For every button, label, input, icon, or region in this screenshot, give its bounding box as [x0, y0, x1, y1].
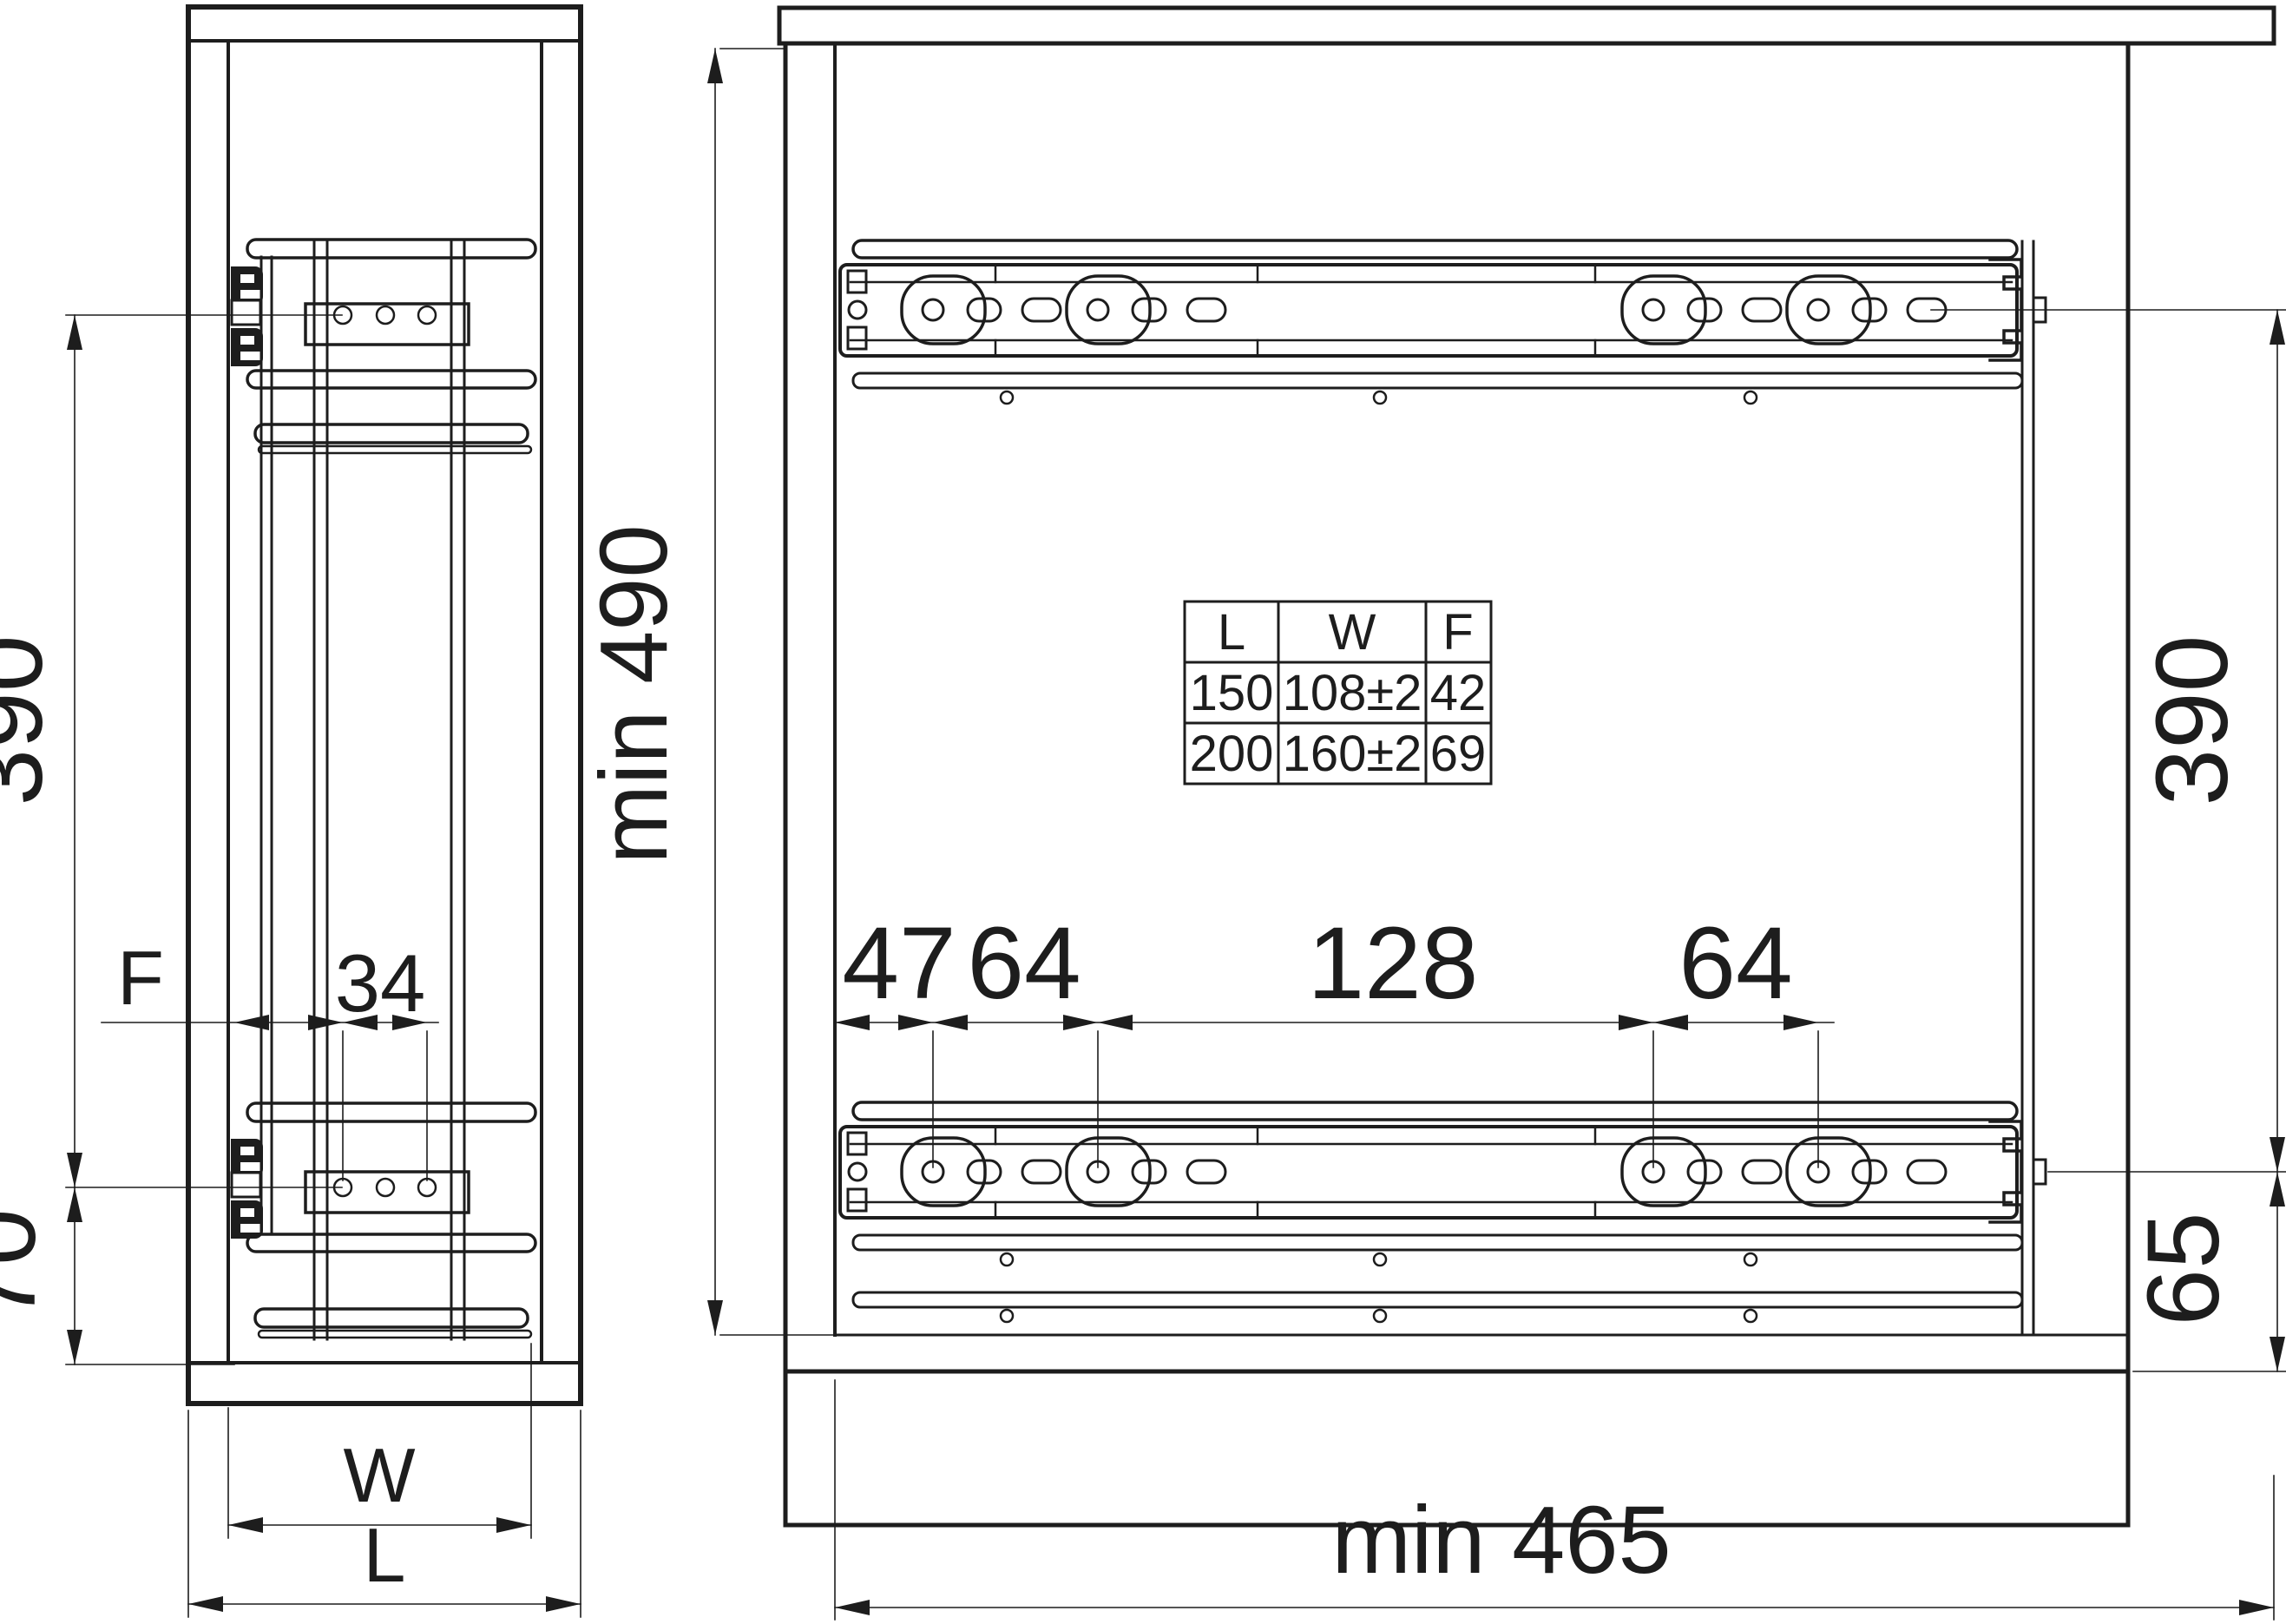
front-basket-posts [314, 240, 464, 1339]
front-dim-W-label: W [343, 1432, 415, 1518]
front-dim-F-label: F [117, 935, 164, 1021]
front-view: 390 70 F 34 W [0, 7, 581, 1617]
table-cell: 200 [1190, 726, 1274, 782]
side-dim-390-65: 390 65 [1931, 310, 2286, 1371]
table-cell: 150 [1190, 665, 1274, 721]
side-dim-64-left-label: 64 [967, 906, 1081, 1021]
front-slide-bar [261, 257, 272, 1233]
front-top-wall-clip [231, 266, 263, 366]
drawer-slide-bottom [840, 1102, 2046, 1266]
side-bottom-shelf-extra [853, 1292, 2022, 1322]
side-dim-min490-label: min 490 [581, 524, 687, 864]
side-dim-min465-label: min 465 [1331, 1487, 1671, 1594]
side-dim-min465: min 465 [835, 1380, 2274, 1620]
side-dim-128-label: 128 [1308, 906, 1479, 1021]
rail-slot-group [902, 276, 1061, 344]
pullout-basket-installation-drawing: 390 70 F 34 W [0, 0, 2286, 1624]
front-basket-bottom [247, 1103, 535, 1338]
table-cell: 108±2 [1283, 665, 1422, 721]
rail-slot-group [1067, 276, 1225, 344]
side-dim-min490: min 490 [581, 49, 835, 1335]
front-dim-L-label: L [364, 1512, 406, 1598]
table-cell: 42 [1430, 665, 1487, 721]
rail-slot-group [1787, 276, 1946, 344]
table-cell: 160±2 [1283, 726, 1422, 782]
front-dim-W: W [228, 1344, 531, 1538]
front-dim-390-label: 390 [0, 635, 64, 806]
table-header-F: F [1442, 604, 1473, 661]
table-header-L: L [1218, 604, 1245, 661]
drawer-slide-top [840, 240, 2046, 404]
front-dim-34-label: 34 [335, 937, 426, 1029]
rail-slot-group [1622, 276, 1781, 344]
side-cabinet-outline [779, 8, 2274, 1525]
front-dim-F-34: F 34 [102, 935, 438, 1180]
front-dim-70: 70 [0, 1187, 234, 1364]
side-dim-64-right-label: 64 [1678, 906, 1792, 1021]
technical-drawing-page: 390 70 F 34 W [0, 0, 2286, 1624]
side-view: L W F 150 108±2 42 200 160±2 69 min 490 [581, 8, 2286, 1620]
front-basket-top [247, 240, 535, 453]
side-dim-390-label: 390 [2135, 635, 2250, 806]
side-dim-65-label: 65 [2126, 1212, 2241, 1325]
table-cell: 69 [1430, 726, 1487, 782]
front-dim-70-label: 70 [0, 1208, 57, 1322]
spec-table: L W F 150 108±2 42 200 160±2 69 [1185, 602, 1491, 784]
front-bottom-wall-clip [231, 1139, 263, 1239]
side-dim-47-label: 47 [842, 906, 956, 1021]
table-header-W: W [1329, 604, 1376, 661]
